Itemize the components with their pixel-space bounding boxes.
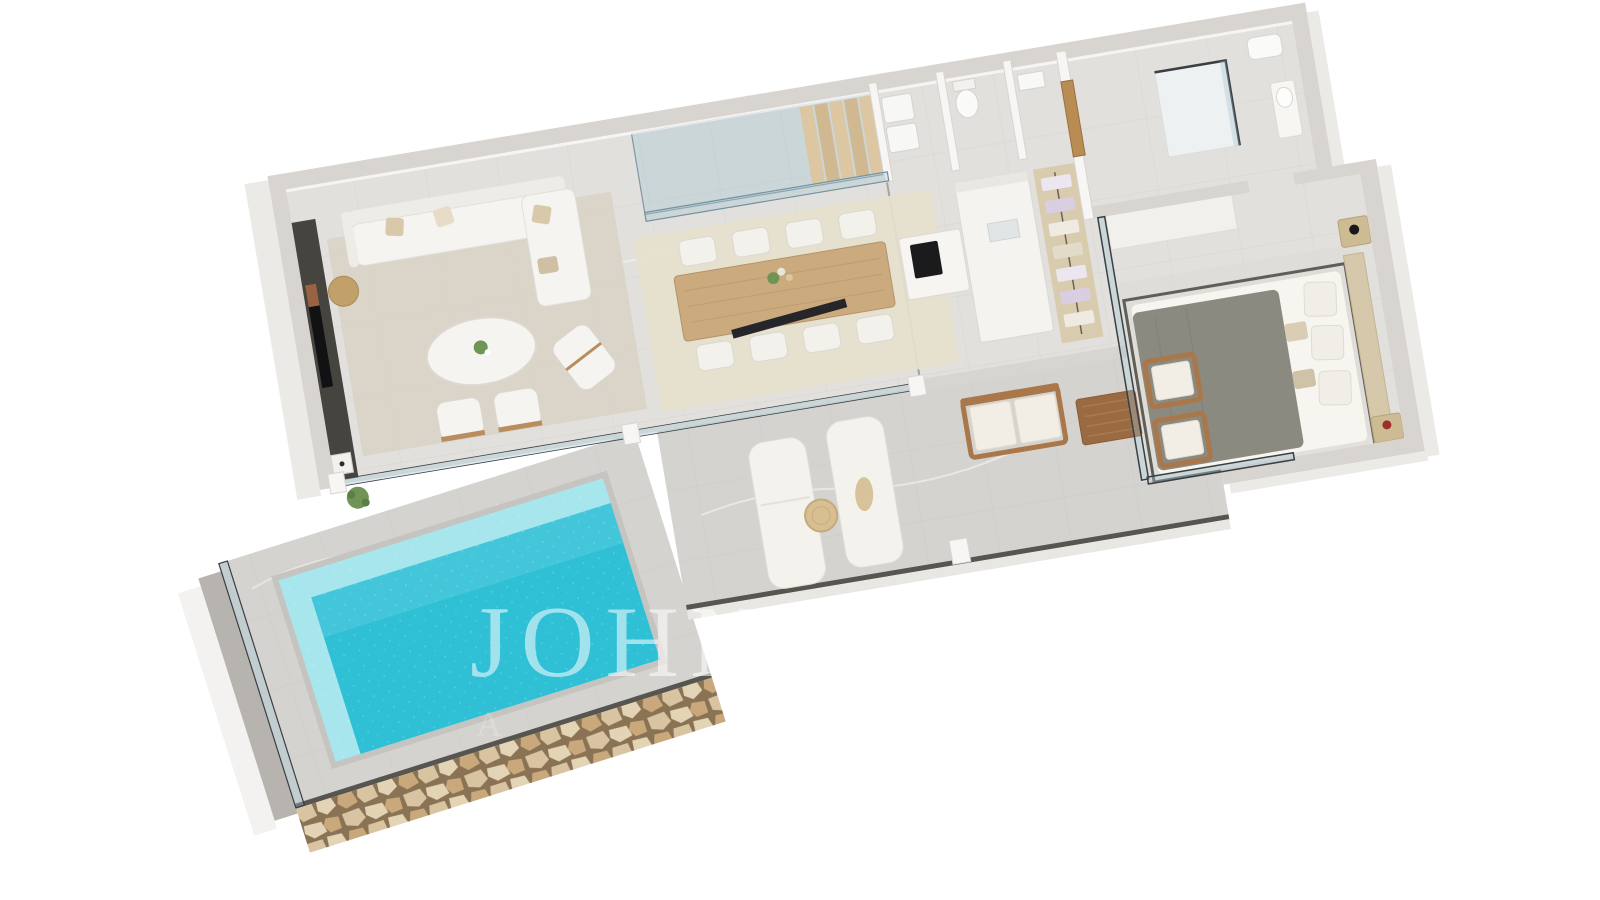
sofa-cushion — [969, 401, 1017, 451]
dining-chair — [731, 227, 771, 259]
dining-chair — [802, 322, 842, 354]
floor-plan-render — [0, 0, 1600, 900]
pillow — [1311, 325, 1344, 360]
dining-chair — [678, 235, 718, 267]
dining-chair — [838, 209, 878, 241]
wall-pier — [621, 423, 640, 445]
throw-cushion — [531, 204, 551, 224]
laundry-machine — [886, 123, 920, 154]
armchair — [493, 387, 543, 433]
throw-cushion — [385, 218, 404, 237]
cooktop — [910, 241, 943, 279]
pool-wing — [173, 433, 726, 868]
pillow — [1319, 370, 1352, 405]
accent-cushion — [1284, 321, 1309, 342]
dining-chair — [695, 340, 735, 372]
dining-chair — [784, 218, 824, 250]
sofa-cushion — [1014, 393, 1062, 443]
terrace-pier — [949, 538, 971, 565]
wall-pier — [328, 472, 347, 494]
dining-chair — [855, 313, 895, 345]
armchair — [435, 396, 485, 442]
laundry-machine — [881, 93, 915, 124]
building — [110, 0, 1474, 874]
wall-pier — [907, 375, 926, 397]
pillow — [1304, 282, 1337, 317]
throw-cushion — [537, 256, 559, 275]
wooden-steps — [799, 95, 884, 184]
floor-plan-page: JOHN T A — [0, 0, 1600, 900]
accent-cushion — [1292, 368, 1317, 389]
dining-chair — [749, 331, 789, 363]
